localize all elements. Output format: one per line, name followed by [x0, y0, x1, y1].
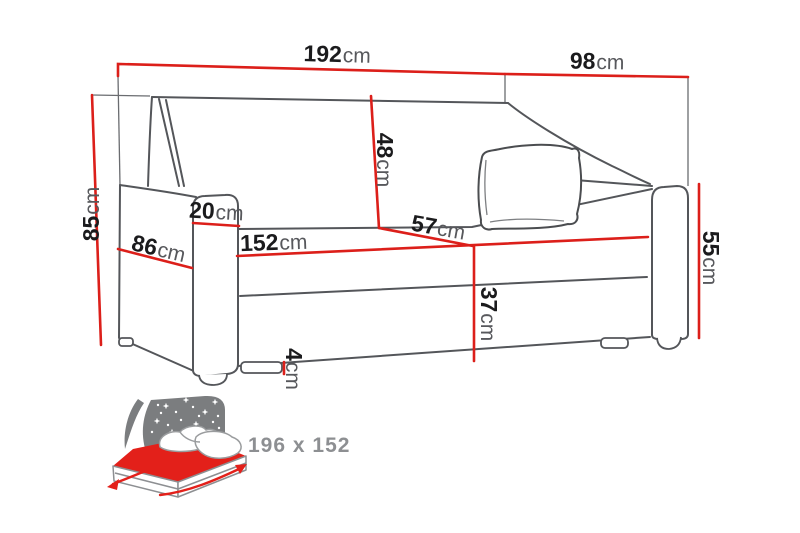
- dim-seat-width-label: 152cm: [240, 228, 308, 256]
- right-arm-front: [652, 186, 688, 339]
- right-arm-foot: [657, 337, 681, 349]
- sofa-dimension-diagram: 192cm 98cm 85cm 86cm 20cm 48cm 152cm 57c…: [0, 0, 800, 533]
- dim-depth-label: 98cm: [570, 48, 625, 75]
- dim-height-label: 85cm: [78, 187, 104, 242]
- front-right-leg: [601, 338, 628, 348]
- dimension-lines: [92, 64, 699, 374]
- dim-width-label: 192cm: [303, 40, 371, 68]
- dim-side-depth-label: 86cm: [129, 229, 188, 267]
- pillow: [478, 145, 581, 230]
- front-left-leg: [241, 362, 282, 373]
- right-arm-top-edge: [575, 180, 652, 186]
- bed-icon: 196 x 152: [107, 396, 350, 497]
- dim-backrest-label: 48cm: [372, 133, 398, 188]
- left-side-foot: [119, 338, 133, 346]
- dim-seat-depth-label: 57cm: [409, 210, 467, 245]
- sleeping-area-label: 196 x 152: [248, 434, 350, 457]
- dim-arm-height-label: 55cm: [698, 231, 724, 286]
- dim-line-depth: [505, 74, 688, 77]
- dim-leg-height-label: 4cm: [281, 348, 307, 390]
- night-sliver: [125, 399, 144, 449]
- left-arm-foot: [199, 374, 227, 385]
- dim-seat-height-label: 37cm: [476, 287, 502, 342]
- back-left-edge: [148, 97, 152, 186]
- seat-front-seam: [240, 277, 647, 296]
- back-top-edge: [152, 97, 508, 103]
- dimension-labels: 192cm 98cm 85cm 86cm 20cm 48cm 152cm 57c…: [78, 40, 724, 390]
- sofa-outline: [119, 97, 688, 376]
- diagram-canvas: 192cm 98cm 85cm 86cm 20cm 48cm 152cm 57c…: [0, 0, 800, 533]
